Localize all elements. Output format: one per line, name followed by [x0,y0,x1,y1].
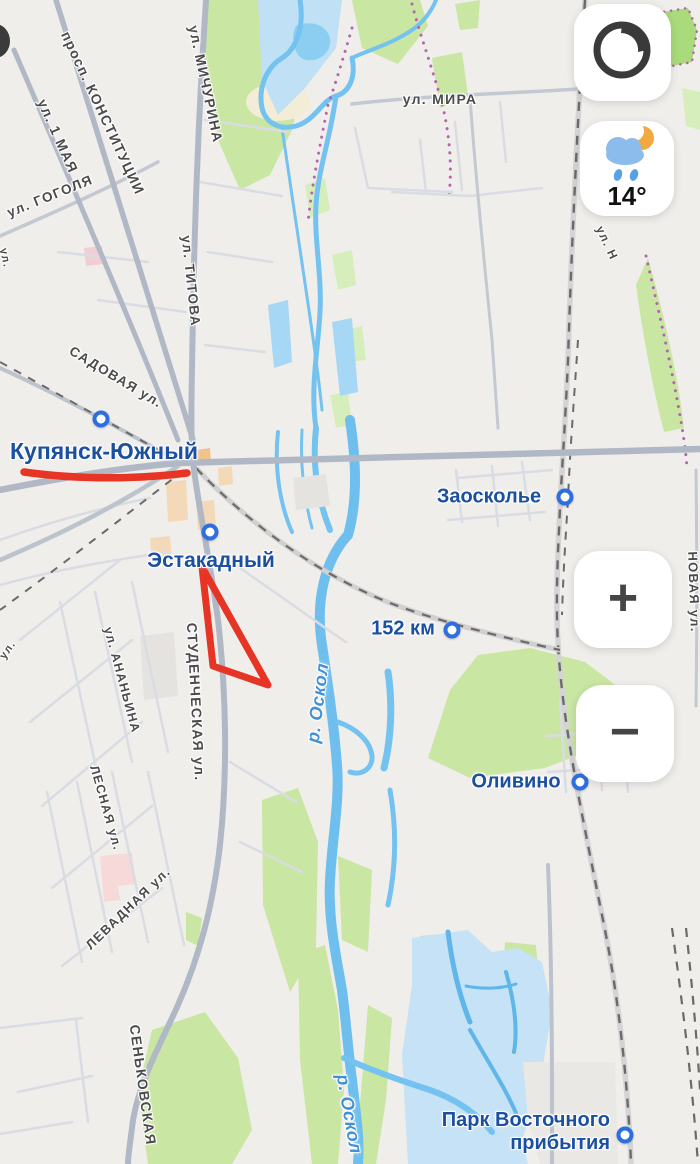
minus-icon: − [610,706,640,758]
weather-temperature: 14° [607,181,646,212]
place-marker[interactable] [617,1127,634,1144]
layers-button[interactable] [574,4,671,101]
place-marker[interactable] [557,489,574,506]
place-label[interactable]: Заосколье [437,486,541,509]
zoom-out-button[interactable]: − [576,685,674,782]
place-label[interactable]: 152 км [371,618,435,641]
place-marker[interactable] [93,411,110,428]
place-marker[interactable] [202,524,219,541]
place-marker[interactable] [444,622,461,639]
zoom-in-button[interactable]: + [574,551,672,648]
place-label[interactable]: Парк Восточногоприбытия [442,1109,610,1155]
map-app: просп. КОНСТИТУЦИИул. 1 МАЯул. ГОГОЛЯул.… [0,0,700,1164]
place-label[interactable]: Эстакадный [147,549,275,573]
plus-icon: + [608,572,638,624]
layers-globe-icon [574,4,671,101]
moon-rain-cloud-icon [590,121,664,185]
place-label[interactable]: Оливино [471,771,560,794]
weather-widget[interactable]: 14° [580,121,674,216]
place-label[interactable]: Купянск-Южный [10,438,198,464]
